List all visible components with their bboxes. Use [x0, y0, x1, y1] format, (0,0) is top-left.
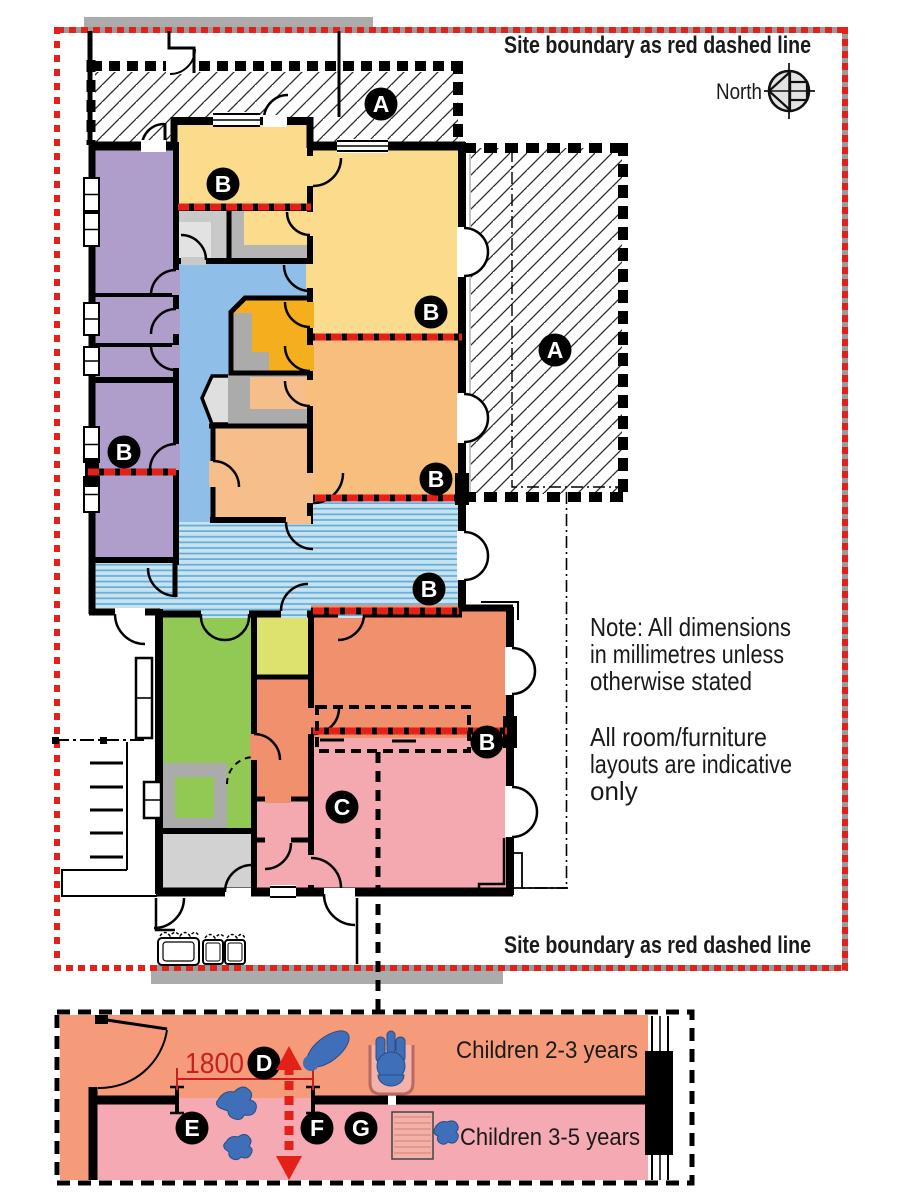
svg-text:A: A	[373, 91, 390, 117]
svg-text:B: B	[116, 439, 133, 465]
svg-text:1800: 1800	[185, 1048, 244, 1080]
svg-text:B: B	[479, 729, 496, 755]
svg-text:All room/furniture: All room/furniture	[590, 722, 767, 752]
svg-text:E: E	[184, 1115, 199, 1141]
svg-text:G: G	[352, 1115, 370, 1141]
svg-text:D: D	[256, 1050, 273, 1076]
svg-text:Site boundary as red dashed li: Site boundary as red dashed line	[504, 932, 811, 959]
svg-text:B: B	[428, 466, 445, 492]
svg-text:North: North	[716, 79, 762, 104]
svg-text:otherwise stated: otherwise stated	[590, 666, 752, 696]
svg-text:B: B	[421, 576, 438, 602]
svg-text:Note: All dimensions: Note: All dimensions	[590, 612, 791, 642]
svg-text:in millimetres unless: in millimetres unless	[590, 639, 784, 669]
svg-text:only: only	[590, 776, 638, 806]
svg-text:Children 3-5 years: Children 3-5 years	[460, 1124, 640, 1151]
svg-text:B: B	[423, 299, 440, 325]
svg-text:Children 2-3 years: Children 2-3 years	[456, 1037, 638, 1064]
svg-text:A: A	[547, 337, 564, 363]
svg-text:F: F	[310, 1115, 324, 1141]
svg-text:B: B	[215, 171, 232, 197]
svg-text:Site boundary as red dashed li: Site boundary as red dashed line	[504, 32, 811, 59]
svg-text:C: C	[334, 794, 351, 820]
svg-text:layouts are indicative: layouts are indicative	[590, 749, 792, 779]
